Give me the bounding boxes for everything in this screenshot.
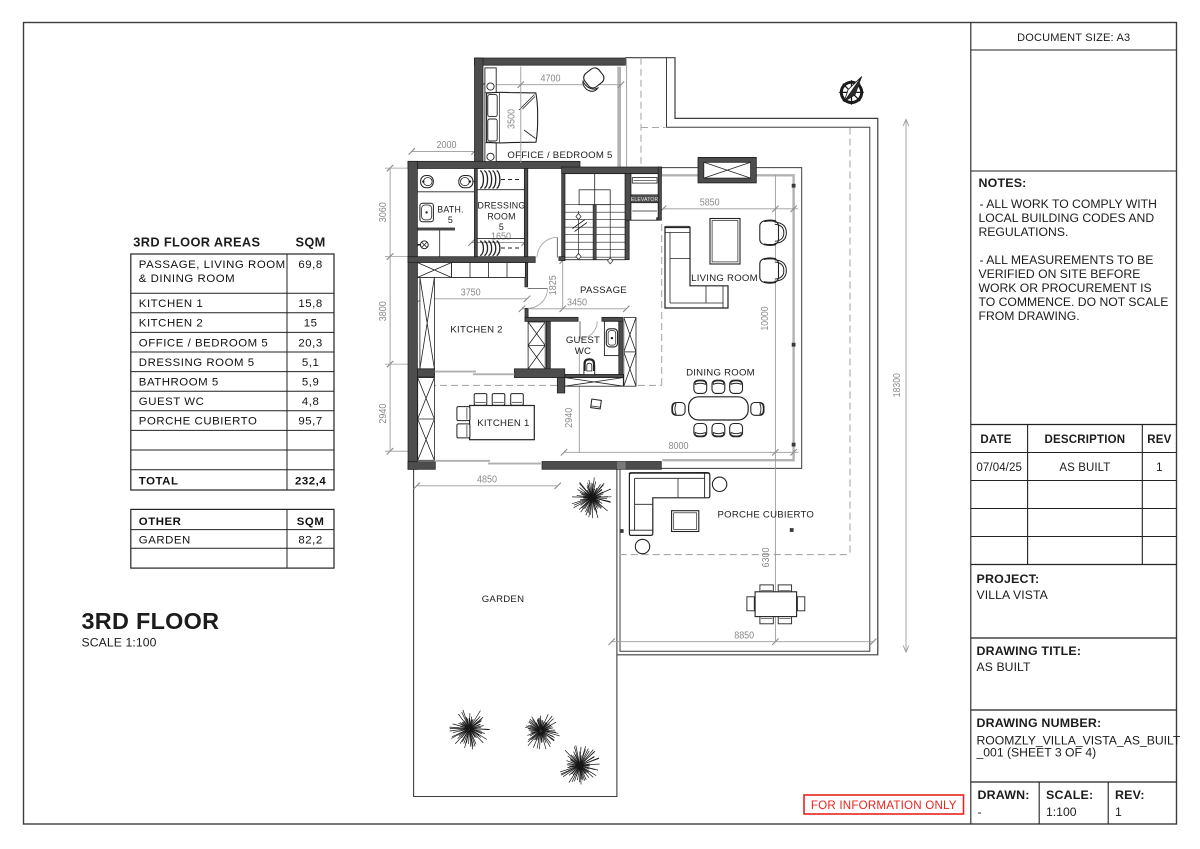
svg-text:1650: 1650 [491,232,511,243]
svg-text:232,4: 232,4 [295,475,326,487]
svg-text:07/04/25: 07/04/25 [976,462,1022,474]
svg-text:DOCUMENT SIZE: A3: DOCUMENT SIZE: A3 [1017,32,1130,44]
svg-text:TOTAL: TOTAL [139,475,179,487]
svg-text:WC: WC [575,346,591,357]
svg-text:15: 15 [304,318,318,330]
svg-text:2000: 2000 [437,140,457,151]
svg-text:GARDEN: GARDEN [482,594,525,605]
svg-text:SCALE 1:100: SCALE 1:100 [82,636,157,650]
svg-text:NOTES:: NOTES: [979,176,1027,190]
svg-text:8850: 8850 [734,630,754,641]
svg-text:BATH.: BATH. [437,205,464,215]
svg-text:2940: 2940 [564,407,575,427]
svg-text:SCALE:: SCALE: [1046,788,1093,802]
svg-text:5,1: 5,1 [302,357,320,369]
svg-text:1: 1 [1156,462,1163,474]
svg-text:20,3: 20,3 [298,337,322,349]
svg-text:4,8: 4,8 [302,396,320,408]
svg-text:WORK OR PROCUREMENT IS: WORK OR PROCUREMENT IS [979,281,1152,295]
svg-text:DINING ROOM: DINING ROOM [686,367,755,378]
svg-text:1: 1 [1115,805,1122,819]
svg-text:10000: 10000 [760,306,771,330]
svg-text:PORCHE CUBIERTO: PORCHE CUBIERTO [139,416,258,428]
svg-text:8000: 8000 [669,441,689,452]
svg-text:& DINING ROOM: & DINING ROOM [139,273,235,285]
svg-text:15,8: 15,8 [298,298,322,310]
svg-text:DRESSING: DRESSING [478,201,526,211]
svg-text:1825: 1825 [548,275,559,295]
svg-text:18300: 18300 [892,373,903,397]
svg-text:AS BUILT: AS BUILT [1059,462,1110,474]
svg-text:DESCRIPTION: DESCRIPTION [1045,434,1126,446]
svg-text:5850: 5850 [700,197,720,208]
svg-text:DRAWING TITLE:: DRAWING TITLE: [977,644,1082,658]
svg-text:1:100: 1:100 [1046,805,1077,819]
svg-text:KITCHEN 1: KITCHEN 1 [477,418,529,429]
svg-text:LOCAL BUILDING CODES AND: LOCAL BUILDING CODES AND [979,211,1155,225]
svg-text:DRAWING NUMBER:: DRAWING NUMBER: [977,716,1102,730]
svg-text:-: - [978,805,982,819]
svg-text:3750: 3750 [461,287,481,298]
svg-text:3800: 3800 [378,301,389,321]
svg-text:ELEVATOR: ELEVATOR [631,197,659,203]
svg-text:KITCHEN 2: KITCHEN 2 [450,325,502,336]
svg-text:3RD FLOOR AREAS: 3RD FLOOR AREAS [133,235,260,250]
svg-text:3RD FLOOR: 3RD FLOOR [82,608,220,634]
svg-text:- ALL MEASUREMENTS TO BE: - ALL MEASUREMENTS TO BE [980,253,1154,267]
svg-text:FOR INFORMATION ONLY: FOR INFORMATION ONLY [811,799,957,812]
svg-text:2940: 2940 [378,403,389,423]
svg-text:KITCHEN 2: KITCHEN 2 [139,318,203,330]
svg-text:DATE: DATE [980,434,1011,446]
svg-text:95,7: 95,7 [298,416,322,428]
svg-text:DRESSING ROOM 5: DRESSING ROOM 5 [139,357,255,369]
svg-text:3450: 3450 [567,297,587,308]
svg-text:GUEST: GUEST [566,335,600,346]
svg-text:FROM DRAWING.: FROM DRAWING. [979,309,1080,323]
svg-text:4850: 4850 [477,474,497,485]
svg-text:82,2: 82,2 [298,535,322,547]
svg-text:6300: 6300 [761,547,772,567]
svg-text:3500: 3500 [507,109,518,129]
svg-text:VERIFIED ON SITE BEFORE: VERIFIED ON SITE BEFORE [979,267,1141,281]
svg-text:PROJECT:: PROJECT: [977,572,1040,586]
svg-text:REGULATIONS.: REGULATIONS. [979,225,1069,239]
svg-text:5,9: 5,9 [302,377,320,389]
svg-text:GARDEN: GARDEN [139,535,191,547]
svg-text:OTHER: OTHER [139,516,182,528]
svg-text:REV: REV [1147,434,1171,446]
svg-text:KITCHEN 1: KITCHEN 1 [139,298,203,310]
svg-text:PORCHE CUBIERTO: PORCHE CUBIERTO [717,510,814,521]
svg-text:5: 5 [499,222,504,232]
svg-text:SQM: SQM [297,516,325,528]
svg-text:ROOM: ROOM [487,211,515,221]
svg-text:LIVING ROOM: LIVING ROOM [691,273,758,284]
svg-text:REV:: REV: [1115,788,1145,802]
svg-text:5: 5 [448,215,453,225]
svg-text:PASSAGE: PASSAGE [580,285,627,296]
svg-text:SQM: SQM [295,235,325,250]
svg-text:GUEST WC: GUEST WC [139,396,205,408]
svg-text:_001 (SHEET 3 OF 4): _001 (SHEET 3 OF 4) [976,746,1097,760]
svg-text:BATHROOM 5: BATHROOM 5 [139,377,219,389]
svg-text:4700: 4700 [541,74,561,85]
svg-text:3060: 3060 [378,202,389,222]
svg-text:DRAWN:: DRAWN: [978,788,1030,802]
svg-text:PASSAGE, LIVING ROOM: PASSAGE, LIVING ROOM [139,259,286,271]
svg-text:VILLA VISTA: VILLA VISTA [977,588,1049,602]
svg-text:TO COMMENCE. DO NOT SCALE: TO COMMENCE. DO NOT SCALE [979,295,1169,309]
svg-text:69,8: 69,8 [298,259,322,271]
svg-text:OFFICE / BEDROOM 5: OFFICE / BEDROOM 5 [507,150,612,161]
svg-text:- ALL WORK TO COMPLY WITH: - ALL WORK TO COMPLY WITH [980,197,1157,211]
svg-text:OFFICE / BEDROOM 5: OFFICE / BEDROOM 5 [139,337,269,349]
svg-text:AS BUILT: AS BUILT [977,660,1032,674]
